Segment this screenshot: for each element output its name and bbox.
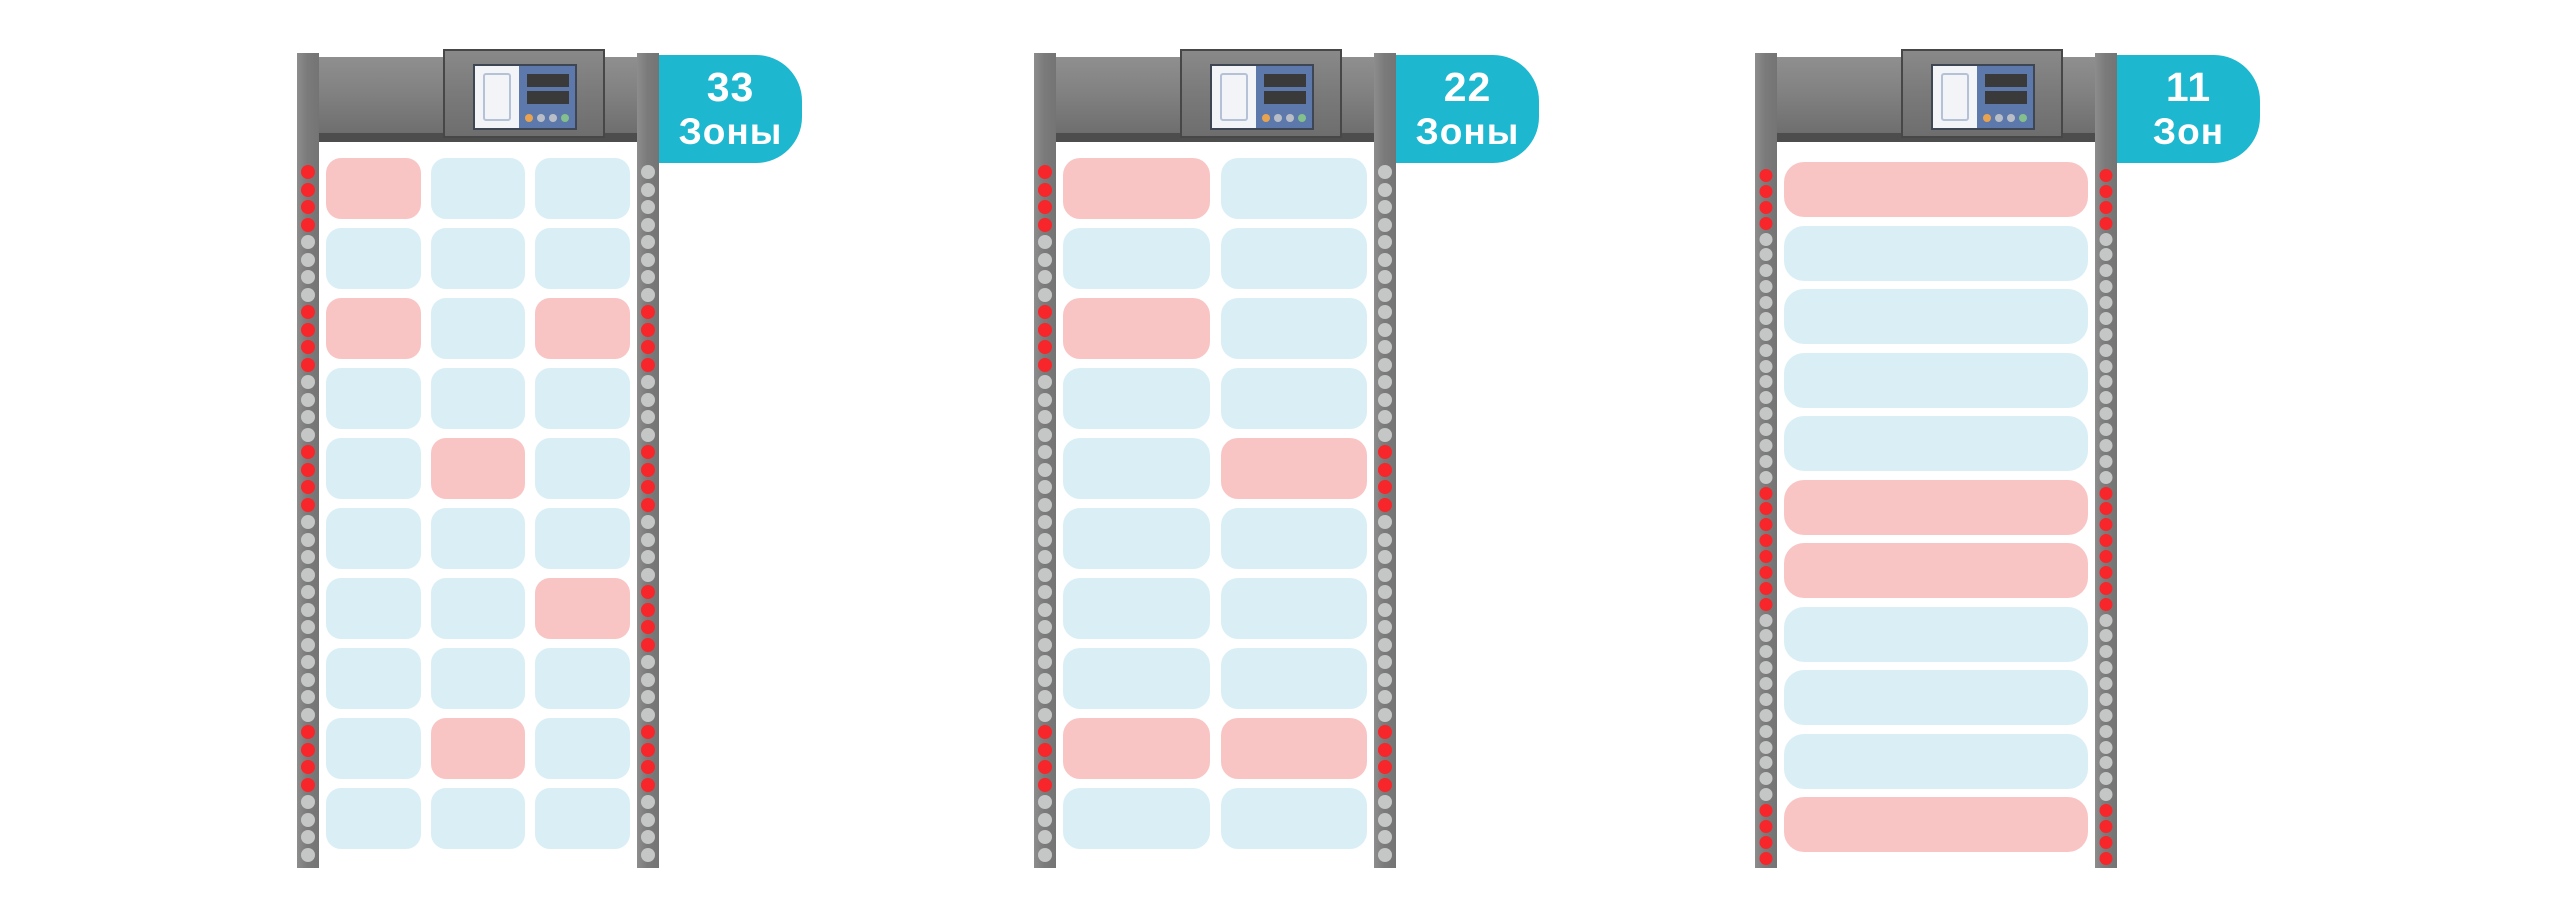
idle-led-icon: [301, 848, 315, 862]
alarm-led-icon: [1038, 760, 1052, 774]
idle-led-icon: [301, 585, 315, 599]
zone-cell: [1784, 353, 2088, 408]
zone-cell-alarm: [1221, 718, 1368, 779]
zone-cell: [535, 368, 630, 429]
idle-led-icon: [1038, 813, 1052, 827]
alarm-led-icon: [301, 165, 315, 179]
zone-count-badge: 11Зон: [2117, 55, 2260, 163]
zone-count-number: 11: [2166, 65, 2211, 111]
idle-led-icon: [641, 428, 655, 442]
alarm-led-icon: [301, 480, 315, 494]
idle-led-icon: [1378, 620, 1392, 634]
idle-led-icon: [301, 270, 315, 284]
idle-led-icon: [2100, 312, 2113, 325]
panel-door: [1933, 66, 1977, 128]
zone-cell: [431, 298, 526, 359]
idle-led-icon: [1038, 585, 1052, 599]
idle-led-icon: [301, 813, 315, 827]
idle-led-icon: [1038, 550, 1052, 564]
alarm-led-icon: [1378, 463, 1392, 477]
idle-led-icon: [641, 813, 655, 827]
alarm-led-icon: [301, 463, 315, 477]
idle-led-icon: [2100, 756, 2113, 769]
idle-led-icon: [1038, 445, 1052, 459]
idle-led-icon: [1760, 709, 1773, 722]
alarm-led-icon: [1760, 566, 1773, 579]
alarm-led-icon: [301, 200, 315, 214]
zone-cell: [1221, 228, 1368, 289]
zone-row: [1784, 416, 2088, 471]
idle-led-icon: [1378, 375, 1392, 389]
alarm-led-icon: [1760, 836, 1773, 849]
idle-led-icon: [1378, 165, 1392, 179]
zone-cell-alarm: [326, 298, 421, 359]
panel-display: [1977, 66, 2033, 128]
idle-led-icon: [1038, 515, 1052, 529]
zone-row: [1784, 797, 2088, 852]
zone-cell: [1784, 607, 2088, 662]
zone-cell: [1221, 368, 1368, 429]
idle-led-icon: [1038, 270, 1052, 284]
idle-led-icon: [2100, 264, 2113, 277]
panel-door: [475, 66, 519, 128]
idle-led-icon: [2100, 693, 2113, 706]
zone-cell-alarm: [1784, 480, 2088, 535]
alarm-led-icon: [301, 760, 315, 774]
zone-count-unit: Зоны: [679, 111, 783, 152]
idle-led-icon: [1760, 312, 1773, 325]
idle-led-icon: [1760, 407, 1773, 420]
zone-cell: [326, 438, 421, 499]
idle-led-icon: [1760, 439, 1773, 452]
idle-led-icon: [1378, 830, 1392, 844]
idle-led-icon: [641, 375, 655, 389]
idle-led-icon: [2100, 725, 2113, 738]
idle-led-icon: [1760, 693, 1773, 706]
idle-led-icon: [301, 708, 315, 722]
alarm-led-icon: [1038, 358, 1052, 372]
idle-led-icon: [1378, 690, 1392, 704]
panel-button-green-icon: [2019, 114, 2027, 122]
alarm-led-icon: [641, 778, 655, 792]
alarm-led-icon: [1760, 201, 1773, 214]
zone-cell-alarm: [1784, 543, 2088, 598]
zone-count-number: 33: [707, 65, 755, 111]
zone-cell-alarm: [326, 158, 421, 219]
alarm-led-icon: [641, 323, 655, 337]
panel-display: [1256, 66, 1312, 128]
panel-button-gray-icon: [549, 114, 557, 122]
alarm-led-icon: [2100, 550, 2113, 563]
idle-led-icon: [641, 393, 655, 407]
idle-led-icon: [1760, 360, 1773, 373]
zone-cell: [1221, 578, 1368, 639]
idle-led-icon: [1378, 655, 1392, 669]
control-panel-face: [473, 64, 577, 130]
idle-led-icon: [641, 795, 655, 809]
idle-led-icon: [1038, 690, 1052, 704]
door-window-icon: [1941, 73, 1969, 121]
idle-led-icon: [301, 533, 315, 547]
alarm-led-icon: [2100, 487, 2113, 500]
idle-led-icon: [2100, 709, 2113, 722]
idle-led-icon: [1760, 264, 1773, 277]
idle-led-icon: [1038, 463, 1052, 477]
alarm-led-icon: [1760, 598, 1773, 611]
idle-led-icon: [301, 515, 315, 529]
idle-led-icon: [1038, 533, 1052, 547]
alarm-led-icon: [2100, 185, 2113, 198]
door-window-icon: [483, 73, 511, 121]
idle-led-icon: [1378, 410, 1392, 424]
alarm-led-icon: [1378, 725, 1392, 739]
idle-led-icon: [1760, 725, 1773, 738]
idle-led-icon: [1378, 515, 1392, 529]
alarm-led-icon: [641, 340, 655, 354]
alarm-led-icon: [301, 218, 315, 232]
idle-led-icon: [641, 550, 655, 564]
idle-led-icon: [1038, 480, 1052, 494]
zone-row: [1063, 368, 1367, 429]
idle-led-icon: [641, 253, 655, 267]
idle-led-icon: [1378, 638, 1392, 652]
idle-led-icon: [1378, 550, 1392, 564]
idle-led-icon: [1038, 498, 1052, 512]
panel-button-orange-icon: [1262, 114, 1270, 122]
idle-led-icon: [641, 708, 655, 722]
idle-led-icon: [301, 795, 315, 809]
idle-led-icon: [1760, 296, 1773, 309]
alarm-led-icon: [1038, 218, 1052, 232]
led-strip-left: [1760, 169, 1773, 868]
zone-cell: [1784, 226, 2088, 281]
alarm-led-icon: [2100, 820, 2113, 833]
idle-led-icon: [2100, 328, 2113, 341]
zone-cell: [535, 508, 630, 569]
idle-led-icon: [641, 568, 655, 582]
zone-row: [1784, 162, 2088, 217]
idle-led-icon: [1038, 410, 1052, 424]
zone-cell: [431, 158, 526, 219]
idle-led-icon: [1038, 603, 1052, 617]
zone-cell: [326, 508, 421, 569]
door-window-icon: [1220, 73, 1248, 121]
idle-led-icon: [1760, 629, 1773, 642]
idle-led-icon: [301, 235, 315, 249]
zone-cell: [1063, 648, 1210, 709]
alarm-led-icon: [1760, 502, 1773, 515]
control-panel: [443, 49, 605, 138]
alarm-led-icon: [641, 743, 655, 757]
idle-led-icon: [301, 830, 315, 844]
idle-led-icon: [641, 655, 655, 669]
idle-led-icon: [1038, 673, 1052, 687]
zone-row: [1784, 289, 2088, 344]
panel-buttons: [1256, 114, 1312, 122]
alarm-led-icon: [641, 445, 655, 459]
idle-led-icon: [1760, 645, 1773, 658]
led-strip-left: [1038, 165, 1052, 865]
zone-grid: [326, 158, 630, 858]
alarm-led-icon: [2100, 217, 2113, 230]
idle-led-icon: [301, 673, 315, 687]
alarm-led-icon: [1378, 778, 1392, 792]
idle-led-icon: [301, 253, 315, 267]
alarm-led-icon: [1378, 445, 1392, 459]
zone-cell: [1063, 578, 1210, 639]
zone-row: [1784, 670, 2088, 725]
zone-cell: [326, 228, 421, 289]
alarm-led-icon: [2100, 534, 2113, 547]
idle-led-icon: [1038, 655, 1052, 669]
display-screen-icon: [527, 74, 569, 87]
zone-row: [1784, 226, 2088, 281]
idle-led-icon: [641, 235, 655, 249]
alarm-led-icon: [1760, 582, 1773, 595]
zone-cell: [326, 718, 421, 779]
zone-cell: [535, 718, 630, 779]
control-panel: [1180, 49, 1342, 138]
alarm-led-icon: [301, 445, 315, 459]
led-strip-left: [301, 165, 315, 865]
idle-led-icon: [641, 533, 655, 547]
idle-led-icon: [2100, 407, 2113, 420]
zone-cell: [431, 648, 526, 709]
alarm-led-icon: [2100, 169, 2113, 182]
idle-led-icon: [1378, 533, 1392, 547]
idle-led-icon: [1378, 393, 1392, 407]
idle-led-icon: [1378, 288, 1392, 302]
alarm-led-icon: [641, 585, 655, 599]
idle-led-icon: [1378, 795, 1392, 809]
idle-led-icon: [1038, 848, 1052, 862]
zone-row: [326, 508, 630, 569]
panel-button-green-icon: [561, 114, 569, 122]
zone-cell: [1221, 298, 1368, 359]
zone-cell: [1063, 788, 1210, 849]
alarm-led-icon: [1038, 323, 1052, 337]
left-pillar: [1755, 53, 1777, 868]
alarm-led-icon: [2100, 201, 2113, 214]
zone-cell-alarm: [431, 438, 526, 499]
idle-led-icon: [1760, 248, 1773, 261]
idle-led-icon: [641, 218, 655, 232]
right-pillar: [1374, 53, 1396, 868]
idle-led-icon: [301, 690, 315, 704]
control-panel-face: [1210, 64, 1314, 130]
panel-door: [1212, 66, 1256, 128]
alarm-led-icon: [1378, 743, 1392, 757]
alarm-led-icon: [641, 305, 655, 319]
panel-display: [519, 66, 575, 128]
zone-row: [326, 368, 630, 429]
alarm-led-icon: [2100, 836, 2113, 849]
idle-led-icon: [641, 410, 655, 424]
zone-cell: [1221, 788, 1368, 849]
display-screen-icon: [1264, 91, 1306, 104]
display-screen-icon: [1264, 74, 1306, 87]
idle-led-icon: [1038, 393, 1052, 407]
alarm-led-icon: [1038, 183, 1052, 197]
zone-cell: [326, 368, 421, 429]
idle-led-icon: [2100, 471, 2113, 484]
right-pillar: [637, 53, 659, 868]
alarm-led-icon: [1378, 760, 1392, 774]
left-pillar: [1034, 53, 1056, 868]
alarm-led-icon: [1760, 518, 1773, 531]
idle-led-icon: [1760, 391, 1773, 404]
alarm-led-icon: [641, 638, 655, 652]
display-screen-icon: [527, 91, 569, 104]
panel-button-orange-icon: [1983, 114, 1991, 122]
idle-led-icon: [1038, 620, 1052, 634]
alarm-led-icon: [1038, 743, 1052, 757]
idle-led-icon: [301, 620, 315, 634]
zone-cell: [1063, 368, 1210, 429]
alarm-led-icon: [641, 725, 655, 739]
idle-led-icon: [1378, 218, 1392, 232]
alarm-led-icon: [1038, 200, 1052, 214]
alarm-led-icon: [1760, 534, 1773, 547]
idle-led-icon: [1378, 428, 1392, 442]
panel-button-green-icon: [1298, 114, 1306, 122]
zone-cell: [431, 228, 526, 289]
idle-led-icon: [1378, 183, 1392, 197]
idle-led-icon: [1378, 673, 1392, 687]
idle-led-icon: [1378, 305, 1392, 319]
idle-led-icon: [1760, 455, 1773, 468]
panel-buttons: [519, 114, 575, 122]
idle-led-icon: [1760, 788, 1773, 801]
panel-button-orange-icon: [525, 114, 533, 122]
alarm-led-icon: [1760, 487, 1773, 500]
zone-cell: [1784, 289, 2088, 344]
idle-led-icon: [2100, 375, 2113, 388]
idle-led-icon: [301, 288, 315, 302]
idle-led-icon: [301, 568, 315, 582]
idle-led-icon: [1038, 708, 1052, 722]
idle-led-icon: [1378, 585, 1392, 599]
zone-cell-alarm: [431, 718, 526, 779]
zone-cell: [1063, 228, 1210, 289]
alarm-led-icon: [301, 743, 315, 757]
idle-led-icon: [1378, 603, 1392, 617]
zone-row: [1063, 648, 1367, 709]
idle-led-icon: [1378, 708, 1392, 722]
alarm-led-icon: [301, 183, 315, 197]
led-strip-right: [1378, 165, 1392, 865]
zone-cell: [535, 438, 630, 499]
alarm-led-icon: [2100, 852, 2113, 865]
zone-row: [326, 158, 630, 219]
display-screen-icon: [1985, 74, 2027, 87]
idle-led-icon: [1760, 756, 1773, 769]
idle-led-icon: [2100, 614, 2113, 627]
zone-cell-alarm: [1784, 797, 2088, 852]
idle-led-icon: [301, 428, 315, 442]
alarm-led-icon: [301, 725, 315, 739]
idle-led-icon: [2100, 391, 2113, 404]
panel-button-gray-icon: [537, 114, 545, 122]
alarm-led-icon: [2100, 566, 2113, 579]
idle-led-icon: [1038, 288, 1052, 302]
zone-cell: [431, 368, 526, 429]
idle-led-icon: [1378, 848, 1392, 862]
idle-led-icon: [1760, 344, 1773, 357]
alarm-led-icon: [1038, 778, 1052, 792]
zone-cell-alarm: [1784, 162, 2088, 217]
idle-led-icon: [641, 288, 655, 302]
idle-led-icon: [1038, 235, 1052, 249]
alarm-led-icon: [1760, 185, 1773, 198]
alarm-led-icon: [301, 778, 315, 792]
zone-row: [326, 298, 630, 359]
zone-row: [1063, 438, 1367, 499]
idle-led-icon: [1378, 340, 1392, 354]
zone-cell: [1221, 508, 1368, 569]
idle-led-icon: [2100, 248, 2113, 261]
idle-led-icon: [2100, 788, 2113, 801]
zone-cell: [535, 228, 630, 289]
idle-led-icon: [2100, 677, 2113, 690]
idle-led-icon: [1038, 375, 1052, 389]
alarm-led-icon: [641, 463, 655, 477]
idle-led-icon: [1038, 795, 1052, 809]
panel-buttons: [1977, 114, 2033, 122]
idle-led-icon: [1378, 813, 1392, 827]
alarm-led-icon: [2100, 502, 2113, 515]
led-strip-right: [2100, 169, 2113, 868]
zone-cell-alarm: [1063, 158, 1210, 219]
zone-row: [1784, 543, 2088, 598]
alarm-led-icon: [2100, 518, 2113, 531]
zone-row: [1784, 353, 2088, 408]
zone-cell: [1063, 438, 1210, 499]
alarm-led-icon: [301, 305, 315, 319]
alarm-led-icon: [641, 603, 655, 617]
alarm-led-icon: [1378, 480, 1392, 494]
idle-led-icon: [1038, 638, 1052, 652]
zone-cell: [431, 508, 526, 569]
alarm-led-icon: [641, 480, 655, 494]
zone-cell-alarm: [535, 298, 630, 359]
zone-row: [326, 228, 630, 289]
display-screen-icon: [1985, 91, 2027, 104]
idle-led-icon: [641, 200, 655, 214]
idle-led-icon: [1378, 200, 1392, 214]
metal-detector: 22Зоны: [1034, 53, 1539, 868]
zone-cell: [1784, 670, 2088, 725]
zone-cell: [1784, 734, 2088, 789]
idle-led-icon: [2100, 296, 2113, 309]
idle-led-icon: [1760, 772, 1773, 785]
idle-led-icon: [641, 690, 655, 704]
panel-button-gray-icon: [1286, 114, 1294, 122]
idle-led-icon: [1760, 423, 1773, 436]
alarm-led-icon: [2100, 582, 2113, 595]
zone-row: [326, 718, 630, 779]
idle-led-icon: [1760, 280, 1773, 293]
alarm-led-icon: [1038, 165, 1052, 179]
zone-cell: [431, 578, 526, 639]
idle-led-icon: [641, 183, 655, 197]
metal-detector: 11Зон: [1755, 53, 2260, 868]
zone-row: [1063, 788, 1367, 849]
idle-led-icon: [641, 270, 655, 284]
idle-led-icon: [641, 515, 655, 529]
zone-row: [1063, 508, 1367, 569]
left-pillar: [297, 53, 319, 868]
